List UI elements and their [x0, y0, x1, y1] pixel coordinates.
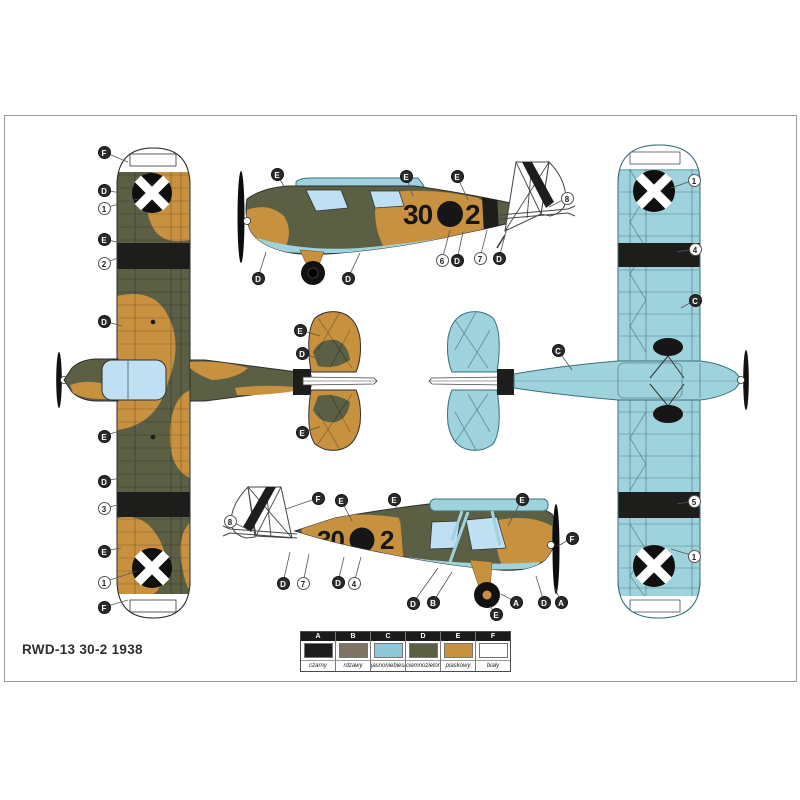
legend-swatch-cell	[336, 641, 370, 661]
legend-color-name: ciemnozielony	[406, 661, 440, 671]
legend-column: D ciemnozielony	[406, 632, 441, 671]
legend-letter: A	[301, 632, 335, 641]
legend-swatch-cell	[476, 641, 510, 661]
legend-swatch-cell	[406, 641, 440, 661]
legend-swatch	[339, 643, 368, 658]
legend-letter: B	[336, 632, 370, 641]
page: 30 2	[0, 0, 800, 800]
legend-swatch	[304, 643, 333, 658]
legend-color-name: rdzawy	[336, 661, 370, 671]
legend-letter: E	[441, 632, 475, 641]
legend-column: F biały	[476, 632, 510, 671]
legend-swatch	[374, 643, 403, 658]
page-title: RWD-13 30-2 1938	[22, 642, 143, 657]
legend-columns: A czarny B rdzawy C jasnoniebieski D	[301, 632, 510, 671]
legend-swatch-cell	[301, 641, 335, 661]
legend-swatch	[409, 643, 438, 658]
legend-letter: C	[371, 632, 405, 641]
legend-letter: F	[476, 632, 510, 641]
legend-column: A czarny	[301, 632, 336, 671]
color-legend: A czarny B rdzawy C jasnoniebieski D	[300, 631, 511, 672]
callout-leader-lines	[0, 0, 800, 800]
legend-swatch	[444, 643, 473, 658]
legend-column: E piaskowy	[441, 632, 476, 671]
legend-swatch	[479, 643, 508, 658]
legend-color-name: czarny	[301, 661, 335, 671]
legend-swatch-cell	[371, 641, 405, 661]
legend-column: B rdzawy	[336, 632, 371, 671]
legend-column: C jasnoniebieski	[371, 632, 406, 671]
legend-letter: D	[406, 632, 440, 641]
legend-swatch-cell	[441, 641, 475, 661]
legend-color-name: biały	[476, 661, 510, 671]
legend-color-name: piaskowy	[441, 661, 475, 671]
legend-color-name: jasnoniebieski	[371, 661, 405, 671]
